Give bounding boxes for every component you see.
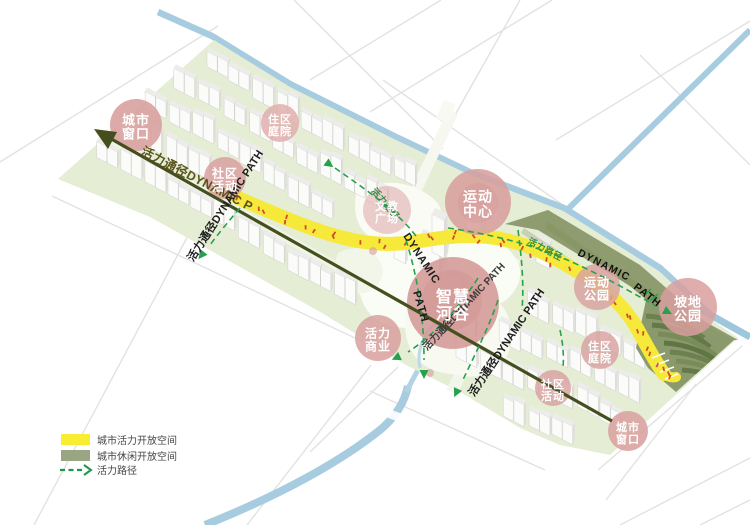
svg-text:广场: 广场 [375,211,399,225]
svg-text:文教: 文教 [375,199,399,213]
svg-text:住区: 住区 [268,112,292,126]
svg-text:河谷: 河谷 [436,304,470,323]
svg-text:商业: 商业 [365,339,391,354]
svg-text:公园: 公园 [584,289,610,303]
svg-text:社区: 社区 [540,377,565,391]
svg-text:中心: 中心 [463,203,493,219]
svg-text:活动: 活动 [212,179,238,194]
svg-text:运动: 运动 [584,276,610,290]
svg-text:活动: 活动 [541,389,565,403]
svg-text:社区: 社区 [211,166,238,181]
svg-text:城市休闲开放空间: 城市休闲开放空间 [97,450,177,463]
svg-text:智慧: 智慧 [436,287,470,306]
svg-text:窗口: 窗口 [616,432,640,446]
svg-text:坡地: 坡地 [674,295,702,310]
svg-text:庭院: 庭院 [268,124,292,138]
svg-text:城市: 城市 [616,420,640,434]
svg-text:公园: 公园 [674,309,702,324]
svg-text:住区: 住区 [588,339,612,353]
svg-text:窗口: 窗口 [122,127,150,142]
svg-text:城市: 城市 [122,113,150,128]
svg-text:活力路径: 活力路径 [97,464,137,477]
svg-text:活力: 活力 [365,326,391,341]
svg-text:城市活力开放空间: 城市活力开放空间 [97,434,177,447]
svg-text:运动: 运动 [463,188,493,204]
svg-text:庭院: 庭院 [588,351,612,365]
